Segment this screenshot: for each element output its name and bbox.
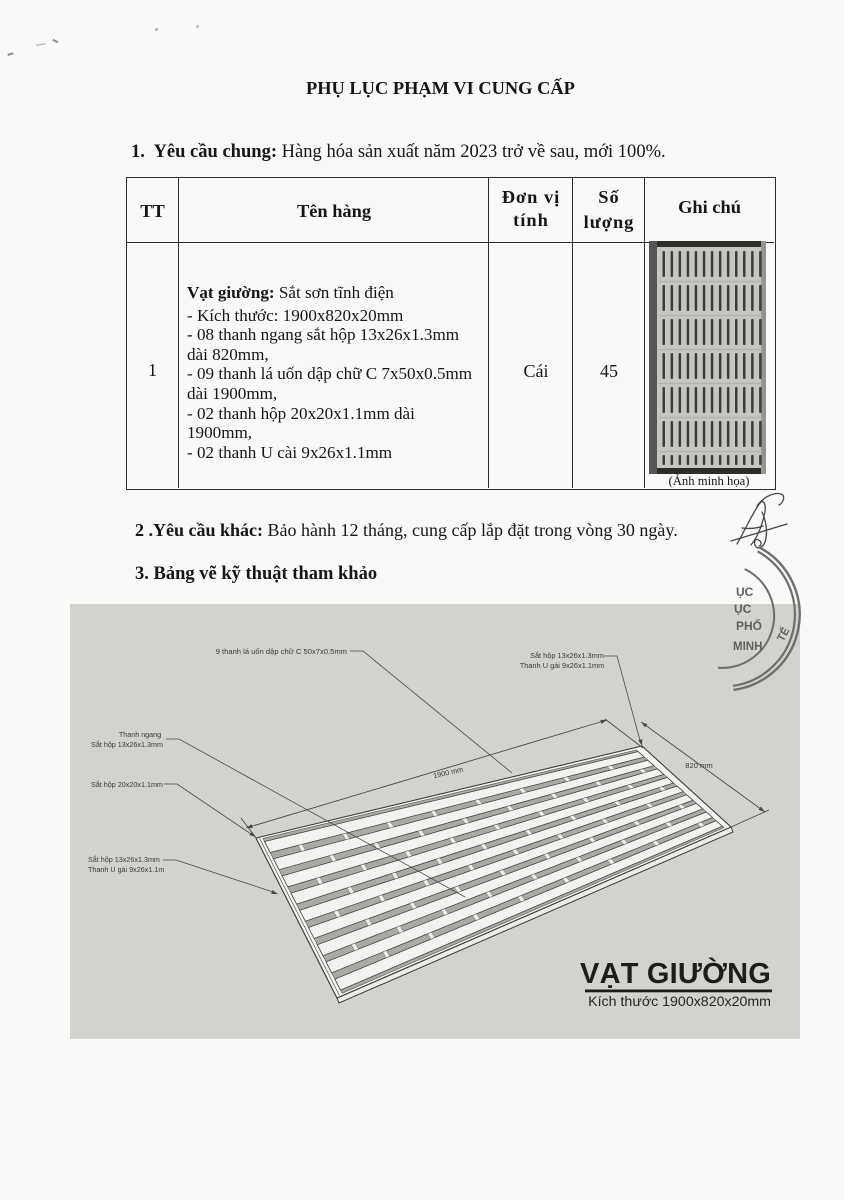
svg-text:820 mm: 820 mm bbox=[685, 761, 712, 770]
svg-text:MINH: MINH bbox=[733, 641, 762, 653]
svg-text:ỤC: ỤC bbox=[736, 585, 754, 599]
svg-text:VẠT GIƯỜNG: VẠT GIƯỜNG bbox=[580, 956, 771, 990]
svg-text:Sắt hộp 13x26x1.3mm: Sắt hộp 13x26x1.3mm bbox=[530, 651, 604, 660]
svg-text:Thanh U gài 9x26x1.1mm: Thanh U gài 9x26x1.1mm bbox=[520, 661, 605, 670]
svg-text:Sắt hộp 13x26x1.3mm: Sắt hộp 13x26x1.3mm bbox=[91, 740, 163, 749]
svg-text:Thanh ngang: Thanh ngang bbox=[119, 730, 161, 739]
svg-text:Sắt hộp 13x26x1.3mm: Sắt hộp 13x26x1.3mm bbox=[88, 855, 160, 864]
svg-text:ỤC: ỤC bbox=[734, 602, 752, 616]
svg-text:9 thanh lá uốn dập chữ C 50x7x: 9 thanh lá uốn dập chữ C 50x7x0.5mm bbox=[216, 647, 347, 656]
svg-text:Sắt hộp 20x20x1.1mm: Sắt hộp 20x20x1.1mm bbox=[91, 780, 163, 789]
svg-text:Kích thước 1900x820x20mm: Kích thước 1900x820x20mm bbox=[588, 994, 771, 1010]
svg-text:Thanh U gài 9x26x1.1m: Thanh U gài 9x26x1.1m bbox=[88, 865, 164, 874]
svg-text:PHỐ: PHỐ bbox=[736, 618, 762, 633]
